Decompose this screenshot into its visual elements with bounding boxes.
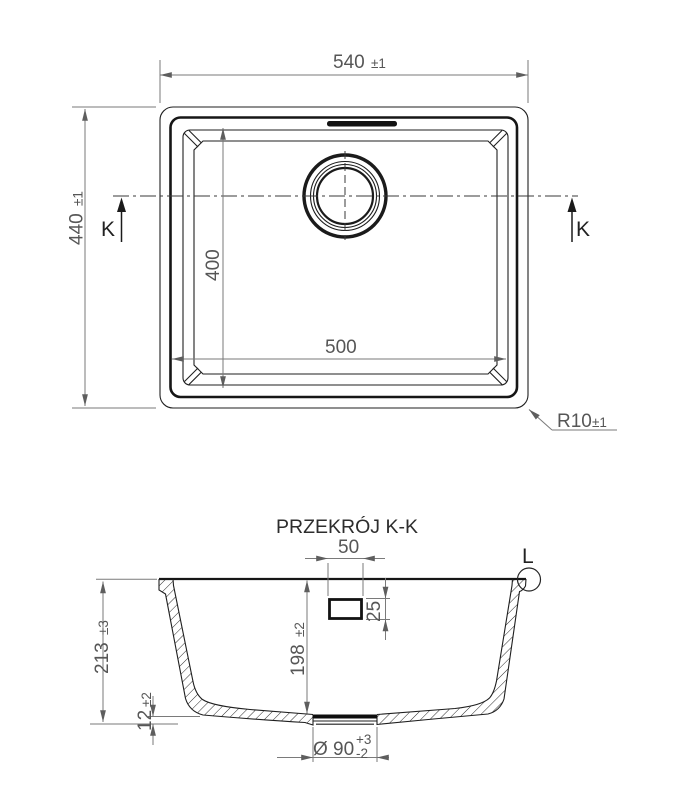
dim-corner-radius-value: R10 (557, 411, 592, 432)
dim-drain-diameter-tol-minus: -2 (356, 746, 368, 761)
section-marker-right: K (568, 198, 591, 243)
dim-bowl-height: 400 (203, 128, 224, 388)
overflow-slot-top-view (327, 121, 397, 127)
dim-overall-height-tolerance: ±1 (71, 191, 86, 206)
dim-overflow-height: 25 (364, 578, 390, 640)
detail-callout-L-label: L (522, 545, 534, 568)
dim-overflow-width-value: 50 (338, 537, 359, 558)
dim-depth-to-drain-value: 198 (288, 644, 309, 676)
section-view: PRZEKRÓJ K-K L 213 ±3 (90, 515, 541, 762)
dim-overflow-height-value: 25 (364, 601, 385, 622)
section-right-inner-outline (377, 579, 513, 715)
dim-bowl-width-value: 500 (325, 337, 357, 358)
dim-drain-diameter-tol-plus: +3 (356, 732, 371, 747)
dim-base-thickness-tolerance: ±2 (139, 692, 154, 707)
overflow-hole-section (330, 600, 362, 619)
dim-corner-radius: R10 ±1 (529, 410, 617, 433)
dim-drain-diameter-value: Ø 90 (313, 739, 354, 760)
section-right-wall-hatch (377, 579, 526, 725)
section-marker-right-label: K (576, 218, 590, 241)
dim-overall-width: 540 ±1 (160, 52, 528, 103)
section-title: PRZEKRÓJ K-K (276, 515, 418, 538)
top-view: 540 ±1 440 ±1 400 500 R10 ±1 (67, 52, 618, 432)
dim-drain-diameter: Ø 90 +3 -2 (277, 727, 389, 762)
dim-depth-to-drain: 198 ±2 (288, 581, 309, 714)
dim-depth-to-drain-tolerance: ±2 (292, 622, 307, 637)
dim-overall-height: 440 ±1 (67, 107, 157, 408)
dim-overall-height-value: 440 (67, 213, 88, 245)
technical-drawing-svg: 540 ±1 440 ±1 400 500 R10 ±1 (0, 0, 682, 800)
dim-base-thickness-value: 12 (135, 710, 156, 731)
dim-bowl-width: 500 (172, 337, 506, 359)
dim-section-overall-height-tolerance: ±3 (96, 620, 111, 635)
dim-section-overall-height: 213 ±3 (90, 579, 178, 724)
drain-opening-section (313, 717, 377, 725)
dim-overall-width-value: 540 (333, 52, 365, 73)
dim-corner-radius-tolerance: ±1 (592, 415, 607, 430)
section-marker-left: K (101, 198, 126, 243)
dim-overflow-width: 50 (305, 537, 385, 596)
dim-overall-width-tolerance: ±1 (371, 56, 386, 71)
section-marker-left-label: K (101, 218, 115, 241)
dim-bowl-height-value: 400 (203, 249, 224, 281)
dim-section-overall-height-value: 213 (92, 642, 113, 674)
